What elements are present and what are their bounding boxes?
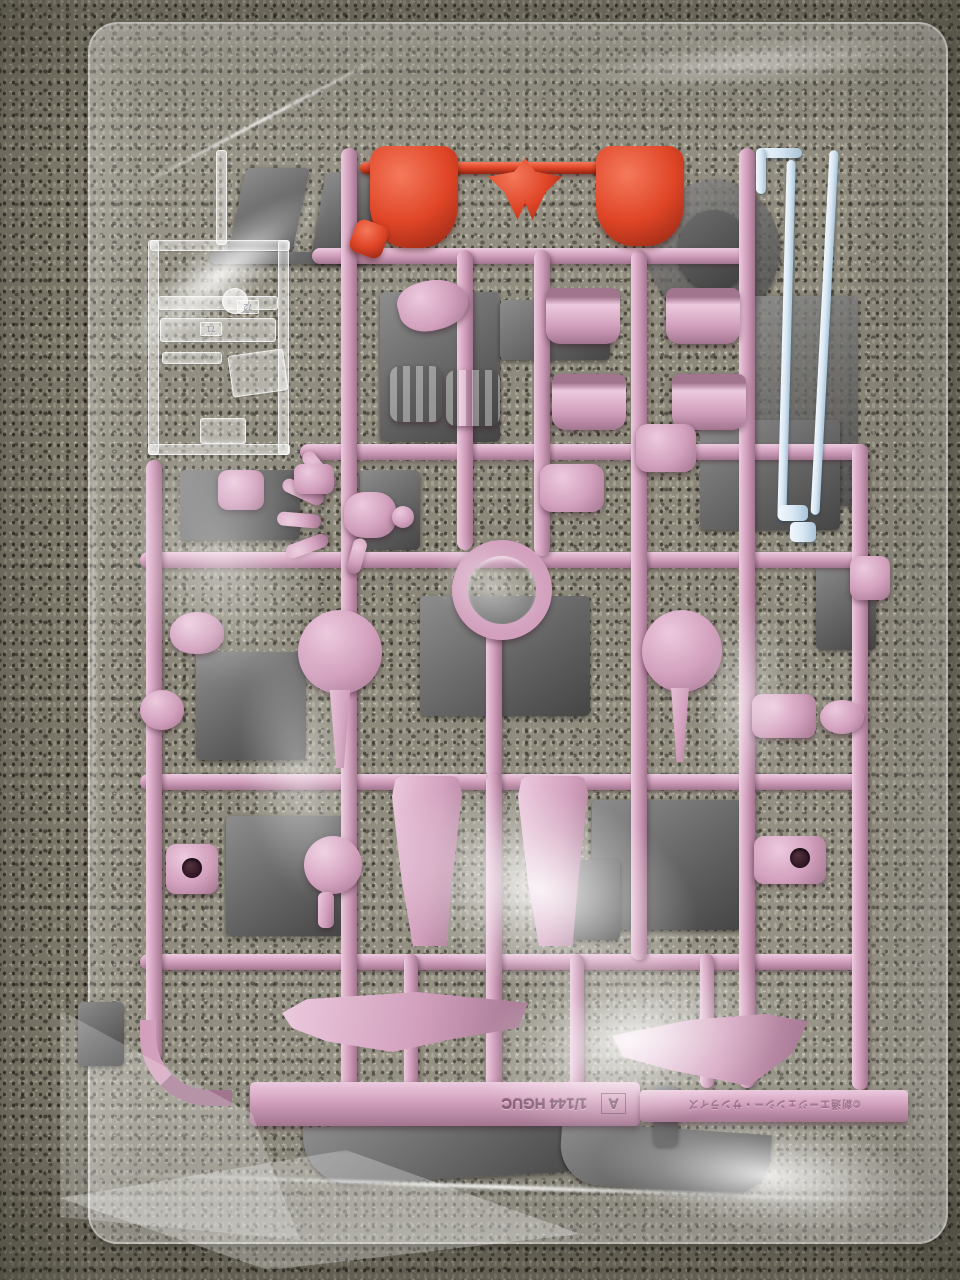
runner-rail [140,774,868,790]
pink-corner-joint-part [850,556,890,600]
runner-rail [739,148,755,1088]
pink-fist-part [446,370,500,426]
blue-fitting-part [778,505,808,521]
pink-small-part [218,470,264,510]
part-number-tag: 71 [200,322,222,336]
pink-small-part [294,464,334,494]
runner-tab-markings: A 1/144 HGUC [250,1082,640,1126]
clear-runner-rail [148,444,290,455]
blue-hook-part [756,148,766,194]
clear-lens-part [158,296,278,310]
clear-plate-part [227,348,288,397]
pink-sphere-part [642,610,722,692]
runner-letter-marking: A [601,1094,626,1115]
blue-fitting-part [790,522,816,542]
runner-rail [631,250,647,960]
part-number-label: 71 [207,325,216,334]
copyright-marking: ©創通エージェンシー・サンライズ [688,1099,861,1114]
pink-cuff-armor-part [666,288,740,344]
clear-runner-rail [216,150,227,245]
runner-rail [146,460,162,1060]
runner-rail [852,444,868,1090]
clear-runner-rail [278,240,289,455]
runner-rail [486,774,502,1090]
pink-block-hole [182,858,202,878]
pink-fist-part [390,366,442,422]
scale-marking: 1/144 HGUC [501,1096,587,1113]
gray-box-part [196,652,306,760]
pink-cuff-armor-part [672,374,746,430]
runner-tab-left: A 1/144 HGUC [250,1082,640,1126]
runner-rail [140,954,868,970]
runner-rail [486,632,502,778]
pink-block-hole [790,848,810,868]
clear-runner-rail [148,240,159,455]
pink-peg-part [318,892,334,928]
pink-sphere-part [298,610,382,694]
pink-disc-part [140,690,184,730]
pink-hand-palm-part [344,492,396,538]
pink-cylinder-joint-part [752,694,816,738]
pink-joint-part [540,464,604,512]
part-number-label: 72 [244,303,253,312]
pink-cuff-armor-part [546,288,620,344]
pink-ring-part [452,540,552,640]
clear-small-part [200,418,246,444]
pink-sphere-part [304,836,362,894]
pink-disc-part [820,700,864,734]
pink-wrist-ball-part [392,506,414,528]
copyright-marking-wrap: ©創通エージェンシー・サンライズ [640,1090,908,1122]
part-number-tag: 72 [237,300,259,314]
pink-disc-part [170,612,224,654]
red-dome-part [596,146,684,246]
clear-strip-part [162,352,222,364]
bag-edge [92,300,95,1000]
pink-elbow-joint-part [636,424,696,472]
clear-runner-rail [150,240,290,251]
runner-tab-right: ©創通エージェンシー・サンライズ [640,1090,908,1122]
runner-rail [570,954,584,1088]
photo-model-kit-runner-in-bag: 72 71 [0,0,960,1280]
pink-cuff-armor-part [552,374,626,430]
